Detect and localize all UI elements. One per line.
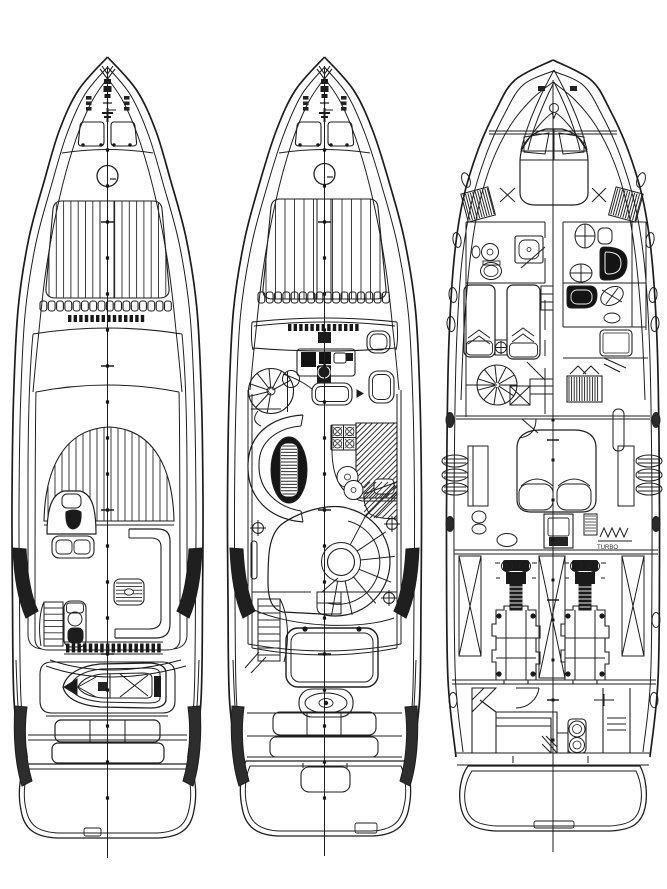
- svg-text:TURBO: TURBO: [597, 545, 618, 551]
